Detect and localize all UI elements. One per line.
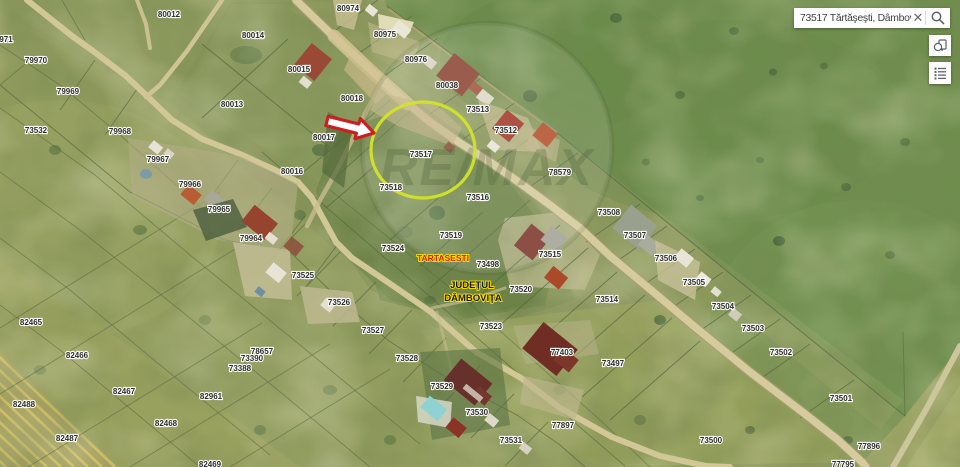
svg-text:82488: 82488 — [13, 400, 36, 409]
svg-text:80018: 80018 — [341, 94, 364, 103]
svg-text:73517: 73517 — [410, 150, 433, 159]
svg-text:73530: 73530 — [466, 408, 489, 417]
svg-text:82469: 82469 — [199, 460, 222, 467]
svg-text:80012: 80012 — [158, 10, 181, 19]
svg-text:73526: 73526 — [328, 298, 351, 307]
svg-text:80017: 80017 — [313, 133, 336, 142]
svg-text:77897: 77897 — [552, 421, 575, 430]
svg-text:82487: 82487 — [56, 434, 79, 443]
svg-text:73504: 73504 — [712, 302, 735, 311]
svg-text:73500: 73500 — [700, 436, 723, 445]
svg-text:82467: 82467 — [113, 387, 136, 396]
svg-text:73525: 73525 — [292, 271, 315, 280]
svg-text:77795: 77795 — [832, 460, 855, 467]
svg-text:82466: 82466 — [66, 351, 89, 360]
svg-text:80975: 80975 — [374, 30, 397, 39]
svg-text:79969: 79969 — [57, 87, 80, 96]
svg-text:73505: 73505 — [683, 278, 706, 287]
svg-text:78579: 78579 — [549, 168, 572, 177]
svg-text:DÂMBOVIŢA: DÂMBOVIŢA — [444, 292, 502, 304]
svg-text:82961: 82961 — [200, 392, 223, 401]
svg-text:73516: 73516 — [467, 193, 490, 202]
svg-text:73508: 73508 — [598, 208, 621, 217]
svg-text:80038: 80038 — [436, 81, 459, 90]
svg-text:TARTASESTI: TARTASESTI — [417, 253, 469, 263]
svg-text:73514: 73514 — [596, 295, 619, 304]
svg-text:77896: 77896 — [858, 442, 881, 451]
svg-text:82465: 82465 — [20, 318, 43, 327]
svg-text:73498: 73498 — [477, 260, 500, 269]
svg-text:73513: 73513 — [467, 105, 490, 114]
svg-text:73520: 73520 — [510, 285, 533, 294]
svg-text:73524: 73524 — [382, 244, 405, 253]
svg-text:73527: 73527 — [362, 326, 385, 335]
svg-text:73506: 73506 — [655, 254, 678, 263]
svg-text:73529: 73529 — [431, 382, 454, 391]
svg-text:80014: 80014 — [242, 31, 265, 40]
svg-text:73531: 73531 — [500, 436, 523, 445]
svg-text:79966: 79966 — [179, 180, 202, 189]
svg-text:73518: 73518 — [380, 183, 403, 192]
svg-text:77403: 77403 — [551, 348, 574, 357]
svg-text:73388: 73388 — [229, 364, 252, 373]
svg-text:73503: 73503 — [742, 324, 765, 333]
svg-text:79965: 79965 — [208, 205, 231, 214]
svg-text:80016: 80016 — [281, 167, 304, 176]
svg-text:73528: 73528 — [396, 354, 419, 363]
svg-text:73390: 73390 — [241, 354, 264, 363]
svg-text:79967: 79967 — [147, 155, 170, 164]
svg-text:73515: 73515 — [539, 250, 562, 259]
svg-text:80974: 80974 — [337, 4, 360, 13]
svg-text:80976: 80976 — [405, 55, 428, 64]
svg-text:79968: 79968 — [109, 127, 132, 136]
svg-text:73502: 73502 — [770, 348, 793, 357]
svg-text:73507: 73507 — [624, 231, 647, 240]
svg-text:73532: 73532 — [25, 126, 48, 135]
svg-text:JUDEŢUL: JUDEŢUL — [450, 280, 494, 291]
svg-text:73501: 73501 — [830, 394, 853, 403]
svg-text:73497: 73497 — [602, 359, 625, 368]
svg-text:73519: 73519 — [440, 231, 463, 240]
svg-text:80013: 80013 — [221, 100, 244, 109]
svg-text:73523: 73523 — [480, 322, 503, 331]
svg-text:79970: 79970 — [25, 56, 48, 65]
svg-text:79964: 79964 — [240, 234, 263, 243]
svg-text:82468: 82468 — [155, 419, 178, 428]
svg-text:80015: 80015 — [288, 65, 311, 74]
svg-text:971: 971 — [0, 35, 13, 44]
svg-text:73512: 73512 — [495, 126, 518, 135]
